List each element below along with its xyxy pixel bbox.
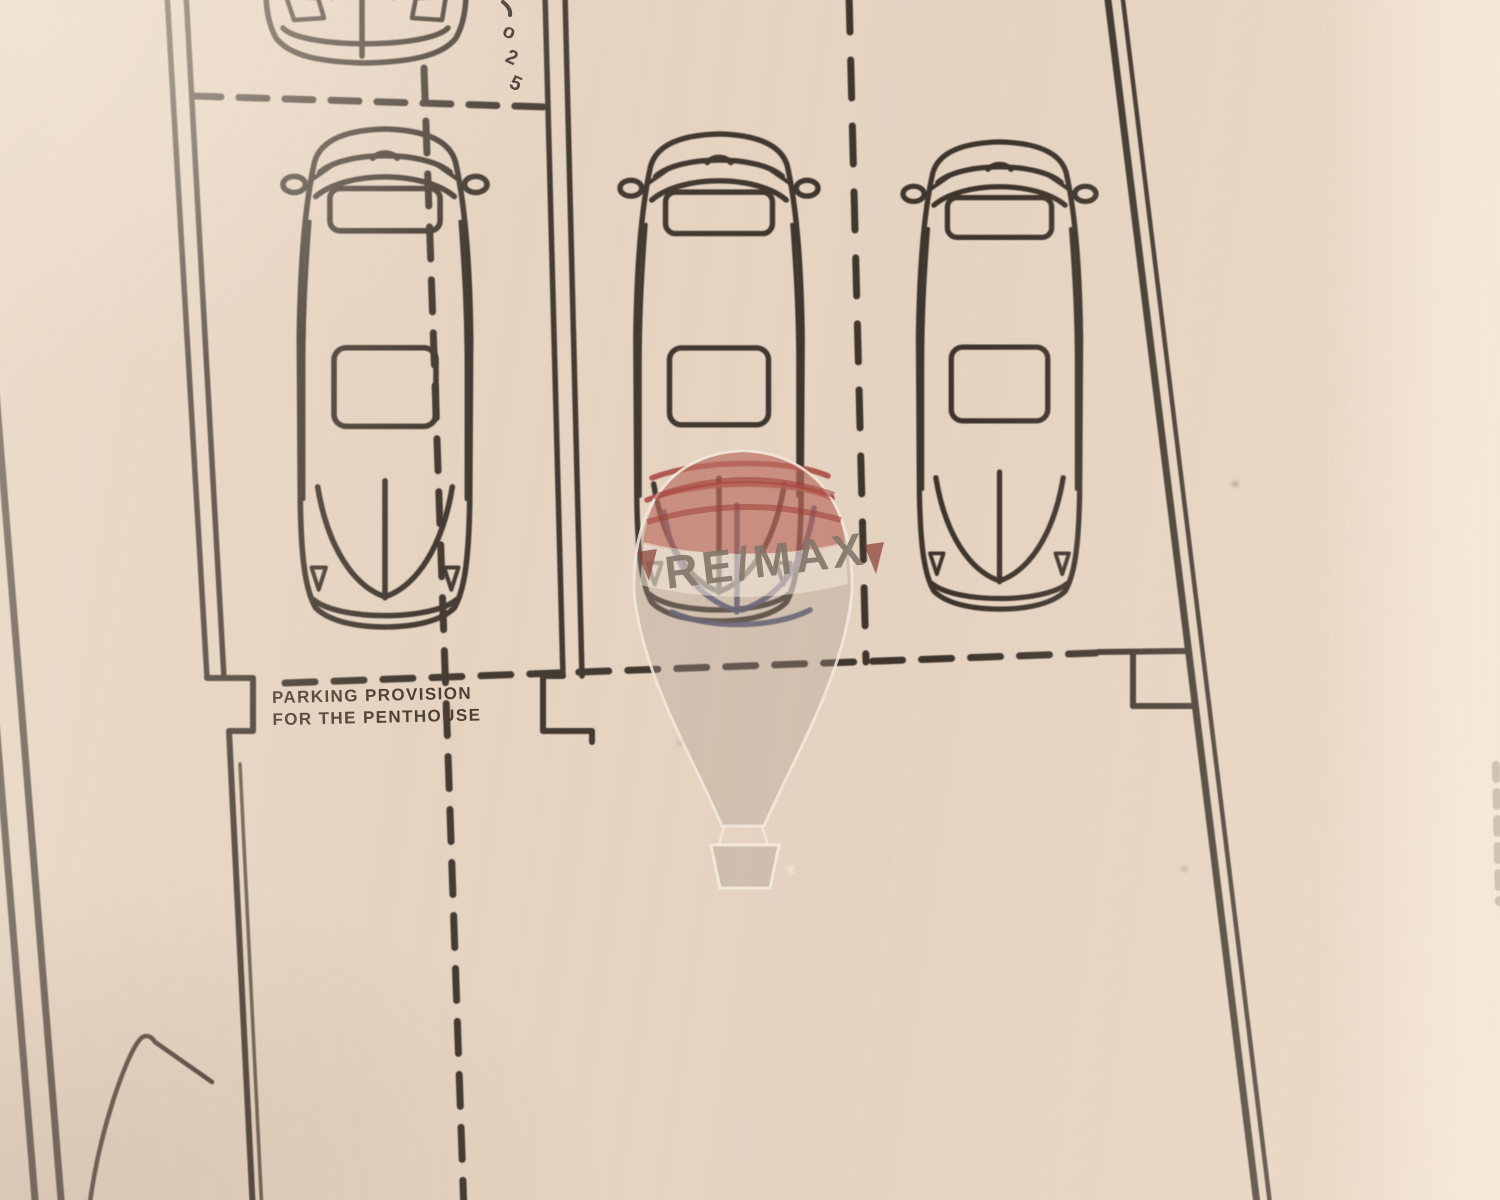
dimension-char-2: 2 <box>502 46 521 71</box>
car-top-partial <box>266 0 466 63</box>
car-left <box>283 129 487 627</box>
parking-note-label: PARKING PROVISION FOR THE PENTHOUSE <box>272 683 482 729</box>
dashed-line-vertical-left-bay <box>424 68 464 1200</box>
left-outer-boundary-line <box>0 392 62 1200</box>
remax-balloon-watermark: RE/MAX ® <box>634 451 884 888</box>
dimension-char-3: 5 <box>506 72 525 97</box>
left-inner-wall-line <box>167 0 262 1200</box>
vertical-dimension-label: o 2 5 <box>499 2 525 96</box>
bay-divider-wall-line <box>543 0 592 742</box>
site-plan-photo: RE/MAX ® PARKING PROVISION FOR THE PENTH… <box>0 0 1500 1200</box>
site-plan-drawing: RE/MAX ® PARKING PROVISION FOR THE PENTH… <box>0 0 1500 1200</box>
right-boundary-line <box>1098 0 1271 1200</box>
watermark-registered-mark: ® <box>786 863 795 877</box>
driveway-curve-line <box>90 1036 212 1200</box>
dimension-char-1: o <box>499 20 519 45</box>
dashed-line-right-edge <box>1496 765 1499 902</box>
dashed-line-top-horizontal <box>193 96 545 107</box>
car-right <box>903 142 1096 609</box>
balloon-basket <box>711 845 779 888</box>
parking-note-line1: PARKING PROVISION <box>272 684 473 708</box>
